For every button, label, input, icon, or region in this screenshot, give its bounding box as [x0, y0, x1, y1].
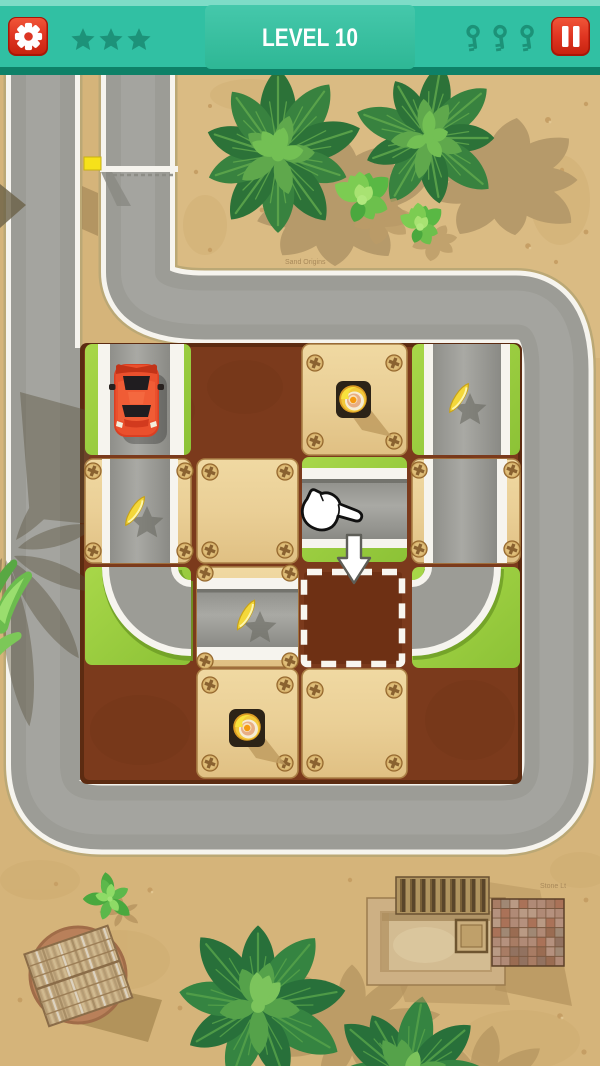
svg-text:Sand Origins: Sand Origins: [285, 259, 326, 266]
svg-text:LEVEL 10: LEVEL 10: [262, 24, 358, 52]
svg-text:Stone Lt: Stone Lt: [540, 883, 566, 890]
